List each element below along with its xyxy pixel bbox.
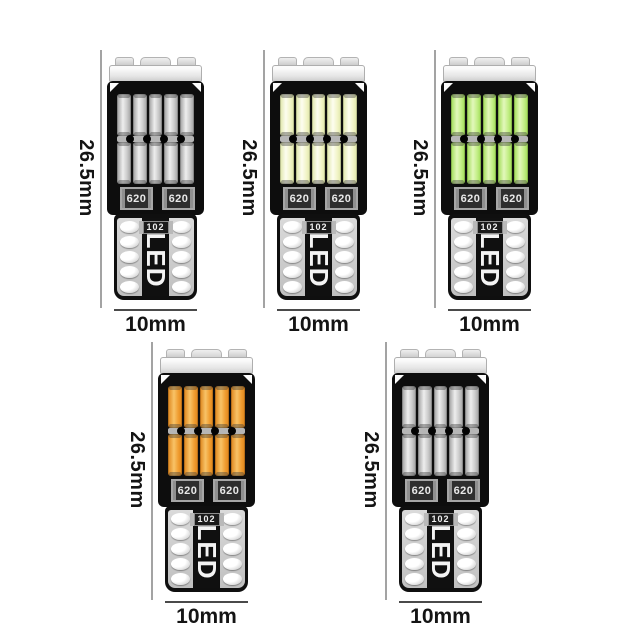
body-highlight-right xyxy=(526,83,535,92)
solder-dots xyxy=(280,133,357,145)
width-dimension-line xyxy=(114,309,197,311)
component-label: 102 xyxy=(197,515,215,524)
solder-dot xyxy=(194,427,202,435)
bulb: 620 620 102 LED xyxy=(107,57,204,300)
led-chip xyxy=(514,142,528,184)
base-bump xyxy=(283,281,302,293)
led-chip xyxy=(418,386,432,428)
height-dimension-label: 26.5mm xyxy=(238,123,260,233)
bulb: 620 620 102 LED xyxy=(441,57,538,300)
led-chip xyxy=(296,142,310,184)
solder-dot xyxy=(160,135,168,143)
led-chip xyxy=(467,142,481,184)
body-highlight-right xyxy=(355,83,364,92)
solder-dots xyxy=(168,425,245,437)
led-chip xyxy=(449,434,463,476)
base-rail-right xyxy=(503,218,528,296)
body-highlight-left xyxy=(110,83,119,92)
led-chip xyxy=(312,142,326,184)
base-bump xyxy=(283,236,302,248)
base-bump xyxy=(120,221,139,233)
bulb: 620 620 102 LED xyxy=(270,57,367,300)
resistor-left: 620 xyxy=(171,479,204,502)
led-text: LED xyxy=(477,233,503,288)
solder-dot xyxy=(460,135,468,143)
led-chip xyxy=(449,386,463,428)
bulb-body: 620 620 xyxy=(270,81,367,215)
solder-dot xyxy=(177,427,185,435)
led-chip xyxy=(200,434,214,476)
led-text: LED xyxy=(306,233,332,288)
led-chip xyxy=(164,142,178,184)
base-rail-right xyxy=(169,218,194,296)
width-dimension-label: 10mm xyxy=(259,313,378,337)
width-dimension-line xyxy=(277,309,360,311)
solder-dot xyxy=(306,135,314,143)
led-chip xyxy=(215,386,229,428)
bulb-body: 620 620 xyxy=(392,373,489,507)
base-bump xyxy=(120,266,139,278)
base-rail-right xyxy=(454,510,479,588)
base-bump xyxy=(335,266,354,278)
base-bump xyxy=(223,558,242,570)
base-bump xyxy=(457,558,476,570)
led-chip xyxy=(149,94,163,136)
base-bump xyxy=(457,573,476,585)
base-bump xyxy=(223,513,242,525)
base-bump xyxy=(405,558,424,570)
solder-dots xyxy=(117,133,194,145)
width-dimension-line xyxy=(448,309,531,311)
led-chip xyxy=(343,94,357,136)
led-chip xyxy=(327,94,341,136)
solder-dot xyxy=(511,135,519,143)
height-dimension-label: 26.5mm xyxy=(409,123,431,233)
base-bump xyxy=(405,543,424,555)
solder-dot xyxy=(323,135,331,143)
base-bump xyxy=(223,573,242,585)
base-bump xyxy=(454,236,473,248)
resistor-right: 620 xyxy=(496,187,529,210)
base-bump xyxy=(457,513,476,525)
body-highlight-right xyxy=(477,375,486,384)
body-highlight-right xyxy=(192,83,201,92)
base-bump xyxy=(283,221,302,233)
led-strip: 102 LED xyxy=(477,218,502,296)
bulb-base: 102 LED xyxy=(114,214,197,300)
led-chip xyxy=(164,94,178,136)
solder-dot xyxy=(462,427,470,435)
base-bump xyxy=(283,251,302,263)
led-strip: 102 LED xyxy=(194,510,219,588)
base-bump xyxy=(120,251,139,263)
product-image: 26.5mm 620 620 xyxy=(0,0,640,640)
led-chip xyxy=(498,94,512,136)
led-chip xyxy=(483,142,497,184)
width-dimension-line xyxy=(165,601,248,603)
bulb: 620 620 102 LED xyxy=(392,349,489,592)
bulb-base: 102 LED xyxy=(448,214,531,300)
led-chip xyxy=(231,386,245,428)
width-dimension-label: 10mm xyxy=(381,605,500,629)
resistor-label: 620 xyxy=(169,193,189,205)
base-bump xyxy=(171,558,190,570)
base-bump xyxy=(506,251,525,263)
led-chip xyxy=(280,94,294,136)
base-bump xyxy=(172,236,191,248)
height-dimension-line xyxy=(100,50,102,308)
led-chip xyxy=(451,94,465,136)
height-dimension-label: 26.5mm xyxy=(360,415,382,525)
resistor-right: 620 xyxy=(213,479,246,502)
solder-dot xyxy=(143,135,151,143)
height-dimension-line xyxy=(434,50,436,308)
resistor-label: 620 xyxy=(332,193,352,205)
base-bump xyxy=(454,281,473,293)
resistor-right: 620 xyxy=(447,479,480,502)
base-bump xyxy=(506,266,525,278)
led-strip: 102 LED xyxy=(428,510,453,588)
base-bump xyxy=(172,266,191,278)
led-chip xyxy=(296,94,310,136)
solder-dot xyxy=(177,135,185,143)
led-chip xyxy=(215,434,229,476)
led-chip xyxy=(168,434,182,476)
led-chip xyxy=(514,94,528,136)
resistor-label: 620 xyxy=(412,485,432,497)
base-bump xyxy=(335,236,354,248)
led-text: LED xyxy=(194,525,220,580)
led-chip xyxy=(465,434,479,476)
base-bump xyxy=(405,528,424,540)
led-chip xyxy=(312,94,326,136)
width-dimension-label: 10mm xyxy=(96,313,215,337)
base-bump xyxy=(120,281,139,293)
led-chip xyxy=(434,386,448,428)
body-highlight-left xyxy=(444,83,453,92)
base-bump xyxy=(171,513,190,525)
resistor-left: 620 xyxy=(120,187,153,210)
width-dimension-label: 10mm xyxy=(147,605,266,629)
height-dimension-label: 26.5mm xyxy=(75,123,97,233)
solder-dot xyxy=(494,135,502,143)
resistor-label: 620 xyxy=(220,485,240,497)
base-bump xyxy=(172,281,191,293)
led-chip xyxy=(465,386,479,428)
base-bump xyxy=(454,251,473,263)
base-bump xyxy=(172,251,191,263)
led-chip xyxy=(168,386,182,428)
base-bump xyxy=(457,543,476,555)
led-text: LED xyxy=(143,233,169,288)
height-dimension-line xyxy=(263,50,265,308)
component-label: 102 xyxy=(309,223,327,232)
base-bump xyxy=(506,236,525,248)
resistor-left: 620 xyxy=(454,187,487,210)
led-chip xyxy=(498,142,512,184)
led-chip xyxy=(418,434,432,476)
led-chip xyxy=(327,142,341,184)
led-strip: 102 LED xyxy=(306,218,331,296)
bulb-body: 620 620 xyxy=(158,373,255,507)
led-chip xyxy=(184,386,198,428)
solder-dot xyxy=(228,427,236,435)
led-chip xyxy=(402,434,416,476)
solder-dot xyxy=(411,427,419,435)
led-chip xyxy=(451,142,465,184)
resistor-label: 620 xyxy=(290,193,310,205)
resistor-label: 620 xyxy=(178,485,198,497)
resistor-label: 620 xyxy=(454,485,474,497)
led-strip: 102 LED xyxy=(143,218,168,296)
base-bump xyxy=(335,281,354,293)
bulb: 620 620 102 LED xyxy=(158,349,255,592)
base-bump xyxy=(454,221,473,233)
resistor-left: 620 xyxy=(405,479,438,502)
led-chip xyxy=(467,94,481,136)
led-chip xyxy=(231,434,245,476)
body-highlight-left xyxy=(395,375,404,384)
base-bump xyxy=(171,543,190,555)
base-bump xyxy=(171,573,190,585)
led-chip xyxy=(184,434,198,476)
led-chip xyxy=(200,386,214,428)
base-rail-right xyxy=(332,218,357,296)
led-chip xyxy=(117,94,131,136)
base-bump xyxy=(171,528,190,540)
height-dimension-line xyxy=(151,342,153,600)
base-bump xyxy=(223,543,242,555)
base-bump xyxy=(283,266,302,278)
base-bump xyxy=(172,221,191,233)
solder-dot xyxy=(477,135,485,143)
led-text: LED xyxy=(428,525,454,580)
height-dimension-line xyxy=(385,342,387,600)
resistor-label: 620 xyxy=(503,193,523,205)
led-chip xyxy=(483,94,497,136)
solder-dot xyxy=(340,135,348,143)
base-bump xyxy=(335,221,354,233)
led-chip xyxy=(180,142,194,184)
width-dimension-label: 10mm xyxy=(430,313,549,337)
body-highlight-right xyxy=(243,375,252,384)
led-chip xyxy=(133,94,147,136)
width-dimension-line xyxy=(399,601,482,603)
height-dimension-label: 26.5mm xyxy=(126,415,148,525)
bulb-base: 102 LED xyxy=(165,506,248,592)
led-chip xyxy=(133,142,147,184)
component-label: 102 xyxy=(480,223,498,232)
bulb-body: 620 620 xyxy=(107,81,204,215)
solder-dot xyxy=(211,427,219,435)
base-rail-right xyxy=(220,510,245,588)
bulb-body: 620 620 xyxy=(441,81,538,215)
solder-dot xyxy=(126,135,134,143)
led-chip xyxy=(343,142,357,184)
base-bump xyxy=(335,251,354,263)
solder-dot xyxy=(289,135,297,143)
base-bump xyxy=(454,266,473,278)
base-bump xyxy=(457,528,476,540)
base-bump xyxy=(223,528,242,540)
led-chip xyxy=(149,142,163,184)
component-label: 102 xyxy=(146,223,164,232)
body-highlight-left xyxy=(273,83,282,92)
led-chip xyxy=(280,142,294,184)
solder-dots xyxy=(402,425,479,437)
resistor-left: 620 xyxy=(283,187,316,210)
solder-dot xyxy=(445,427,453,435)
resistor-right: 620 xyxy=(325,187,358,210)
resistor-right: 620 xyxy=(162,187,195,210)
solder-dots xyxy=(451,133,528,145)
base-bump xyxy=(405,513,424,525)
led-chip xyxy=(434,434,448,476)
bulb-base: 102 LED xyxy=(399,506,482,592)
bulb-base: 102 LED xyxy=(277,214,360,300)
base-bump xyxy=(506,221,525,233)
led-chip xyxy=(402,386,416,428)
base-bump xyxy=(405,573,424,585)
base-bump xyxy=(506,281,525,293)
body-highlight-left xyxy=(161,375,170,384)
resistor-label: 620 xyxy=(461,193,481,205)
component-label: 102 xyxy=(431,515,449,524)
base-bump xyxy=(120,236,139,248)
led-chip xyxy=(117,142,131,184)
led-chip xyxy=(180,94,194,136)
resistor-label: 620 xyxy=(127,193,147,205)
solder-dot xyxy=(428,427,436,435)
